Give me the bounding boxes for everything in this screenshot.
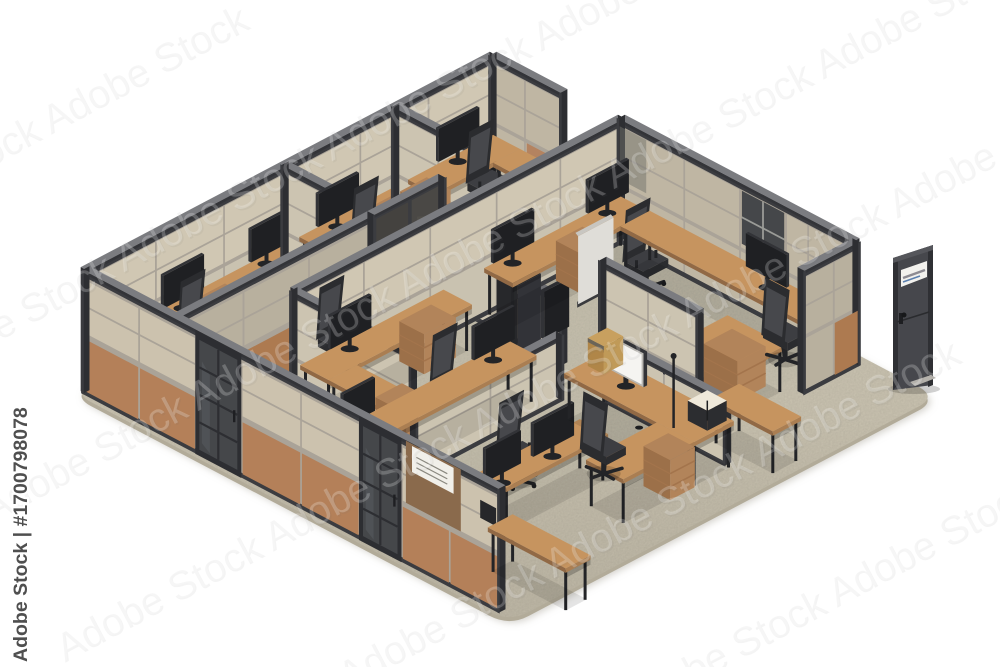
svg-text:Adobe Stock | #1700798078: Adobe Stock | #1700798078 (10, 407, 32, 662)
